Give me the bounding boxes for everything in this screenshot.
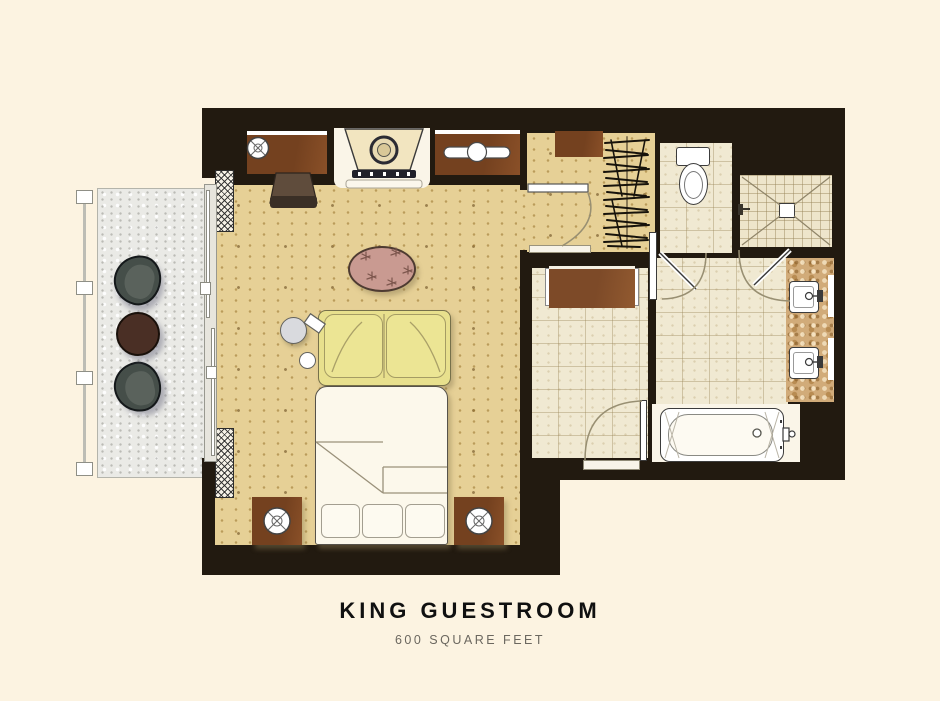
tv-nook [334,128,430,188]
plan-subtitle: 600 SQUARE FEET [0,633,940,647]
toilet-bowl-inner [684,171,703,199]
sliding-door-panel [206,190,210,318]
curtain [215,170,234,232]
vestibule-threshold [529,245,591,253]
bathroom-door-leaf [649,232,657,300]
wall-left-top [202,108,248,178]
balcony-rail [83,190,86,475]
floor-plan-page: { "caption": { "title": "KING GUESTROOM"… [0,0,940,701]
bed-pillow [362,504,403,538]
bed-pillow [405,504,445,538]
sliding-door-handle [206,366,217,379]
console-table [549,266,635,308]
vanity-mirror [828,338,834,380]
bathtub-basin [668,414,773,456]
area-rug [348,246,416,292]
bed-pillow [321,504,360,538]
stool [299,352,316,369]
chair-cushion [122,369,157,408]
luggage-rack [555,131,603,157]
floor-plan [0,0,940,701]
sofa-cushion [324,314,383,378]
bathroom-floor [656,258,788,404]
curtain [215,428,234,498]
vanity-sink-basin [793,352,814,374]
railing-post [76,462,93,476]
caption-block: KING GUESTROOM 600 SQUARE FEET [0,598,940,647]
entry-door-leaf [640,400,647,461]
entry-threshold [583,460,640,470]
railing-post [76,190,93,204]
dresser [435,130,520,175]
railing-post [76,371,93,385]
vanity-counter [786,258,834,402]
sliding-door-handle [200,282,211,295]
vanity-mirror [828,275,834,317]
side-table [280,317,307,344]
nightstand [454,497,504,545]
shower-drain [779,203,795,218]
nightstand [252,497,302,545]
sliding-door-panel [211,328,215,456]
desk [247,131,327,174]
sofa-cushion [386,314,446,378]
vanity-sink-basin [793,286,814,308]
chair-cushion [121,261,157,301]
plan-title: KING GUESTROOM [0,598,940,624]
railing-post [76,281,93,295]
round-table [116,312,160,356]
